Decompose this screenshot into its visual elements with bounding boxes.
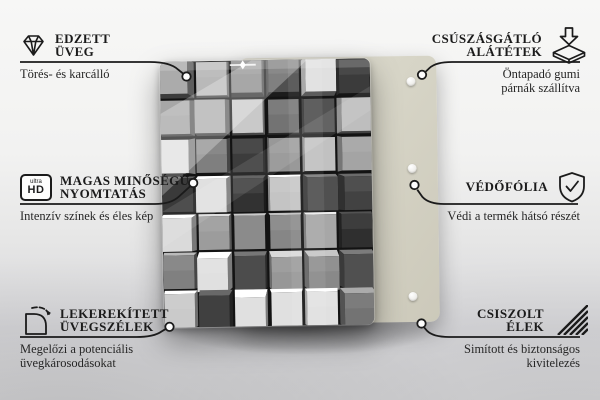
feature-title: LEKEREKÍTETT ÜVEGSZÉLEK xyxy=(60,307,169,334)
title-line: VÉDŐFÓLIA xyxy=(466,180,548,194)
subtitle-line: párnák szállítva xyxy=(432,82,580,96)
rounded-corner-icon xyxy=(20,304,52,336)
subtitle-line: Simított és biztonságos xyxy=(464,343,580,357)
feature-title: MAGAS MINŐSÉGŰ NYOMTATÁS xyxy=(60,174,189,201)
feature-subtitle: Intenzív színek és éles kép xyxy=(20,210,189,224)
shield-check-icon xyxy=(556,171,588,203)
subtitle-line: Törés- és karcálló xyxy=(20,68,110,82)
title-line: EDZETT xyxy=(55,32,110,46)
pads-icon xyxy=(550,26,588,64)
feature-rounded-edges: LEKEREKÍTETT ÜVEGSZÉLEK Megelőzi a poten… xyxy=(20,303,169,370)
feature-title: EDZETT ÜVEG xyxy=(55,32,110,59)
title-line: ÜVEGSZÉLEK xyxy=(60,320,169,334)
rubber-pad xyxy=(408,292,417,301)
feature-subtitle: Törés- és karcálló xyxy=(20,68,110,82)
title-line: MAGAS MINŐSÉGŰ xyxy=(60,174,189,188)
cube-pattern-art xyxy=(160,58,375,328)
subtitle-line: Öntapadó gumi xyxy=(432,68,580,82)
hd-label: HD xyxy=(28,185,45,196)
subtitle-line: üvegkárosodásokat xyxy=(20,357,169,371)
feature-polished-edges: CSISZOLT ÉLEK Simított és biztonságos ki… xyxy=(464,303,588,370)
rubber-pad xyxy=(408,164,417,173)
hatch-icon xyxy=(552,305,588,335)
glass-board-cube-pattern xyxy=(160,58,375,328)
title-line: NYOMTATÁS xyxy=(60,187,189,201)
title-line: CSISZOLT xyxy=(477,307,544,321)
subtitle-line: Védi a termék hátsó részét xyxy=(447,210,580,224)
rubber-pad xyxy=(406,77,415,86)
product-infographic: EDZETT ÜVEG Törés- és karcálló CSÚSZÁSGÁ… xyxy=(0,0,600,400)
title-line: ALÁTÉTEK xyxy=(432,45,542,59)
subtitle-line: Intenzív színek és éles kép xyxy=(20,210,189,224)
feature-title: CSÚSZÁSGÁTLÓ ALÁTÉTEK xyxy=(432,32,542,59)
feature-protective-film: VÉDŐFÓLIA Védi a termék hátsó részét xyxy=(447,170,588,224)
feature-subtitle: Védi a termék hátsó részét xyxy=(447,210,580,224)
feature-high-quality-print: ultra HD MAGAS MINŐSÉGŰ NYOMTATÁS Intenz… xyxy=(20,170,189,224)
feature-title: CSISZOLT ÉLEK xyxy=(477,307,544,334)
feature-subtitle: Öntapadó gumi párnák szállítva xyxy=(432,68,580,95)
diamond-icon xyxy=(20,33,47,58)
feature-subtitle: Megelőzi a potenciális üvegkárosodásokat xyxy=(20,343,169,370)
feature-anti-slip-pads: CSÚSZÁSGÁTLÓ ALÁTÉTEK Öntapadó gumi párn… xyxy=(432,28,588,95)
feature-tempered-glass: EDZETT ÜVEG Törés- és karcálló xyxy=(20,28,110,82)
feature-title: VÉDŐFÓLIA xyxy=(466,180,548,194)
title-line: ÜVEG xyxy=(55,45,110,59)
subtitle-line: kivitelezés xyxy=(464,357,580,371)
title-line: ÉLEK xyxy=(477,320,544,334)
feature-subtitle: Simított és biztonságos kivitelezés xyxy=(464,343,580,370)
ultra-hd-icon: ultra HD xyxy=(20,174,52,201)
title-line: CSÚSZÁSGÁTLÓ xyxy=(432,32,542,46)
subtitle-line: Megelőzi a potenciális xyxy=(20,343,169,357)
title-line: LEKEREKÍTETT xyxy=(60,307,169,321)
